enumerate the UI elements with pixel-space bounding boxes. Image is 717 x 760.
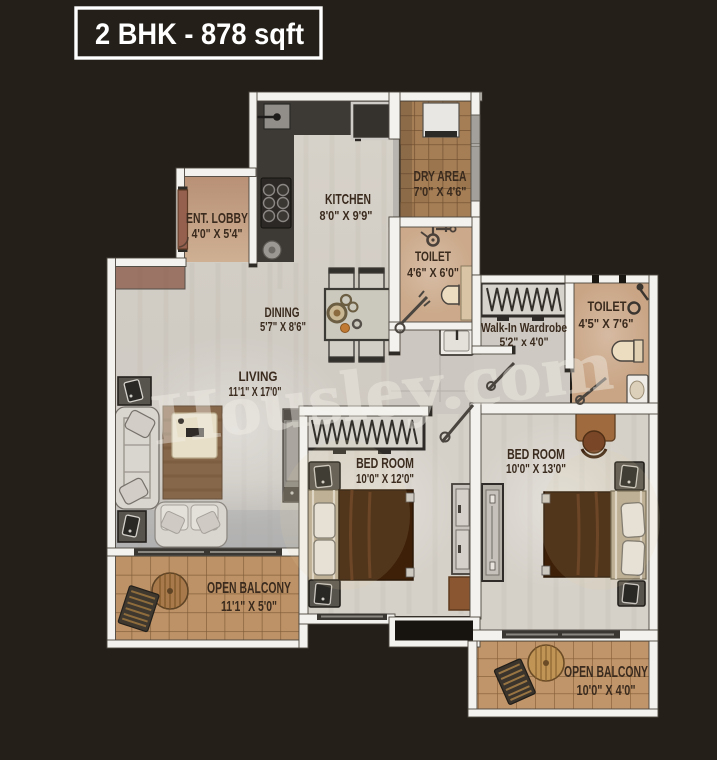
svg-text:11'1" X 5'0": 11'1" X 5'0" <box>221 598 277 614</box>
svg-text:DRY AREA: DRY AREA <box>414 168 467 184</box>
svg-text:KITCHEN: KITCHEN <box>325 191 371 207</box>
svg-text:5'7" X 8'6": 5'7" X 8'6" <box>260 321 306 335</box>
svg-text:TOILET: TOILET <box>415 248 451 264</box>
svg-text:2 BHK - 878 sqft: 2 BHK - 878 sqft <box>95 18 304 51</box>
svg-text:10'0" X 12'0": 10'0" X 12'0" <box>356 473 414 487</box>
svg-text:DINING: DINING <box>265 304 300 320</box>
svg-text:8'0" X 9'9": 8'0" X 9'9" <box>320 208 373 223</box>
svg-text:10'0" X 13'0": 10'0" X 13'0" <box>506 462 566 477</box>
svg-text:4'0" X 5'4": 4'0" X 5'4" <box>192 227 243 241</box>
svg-text:10'0" X 4'0": 10'0" X 4'0" <box>577 681 636 698</box>
svg-text:7'0" X 4'6": 7'0" X 4'6" <box>414 184 467 199</box>
svg-text:4'6" X 6'0": 4'6" X 6'0" <box>407 265 459 280</box>
svg-text:ENT. LOBBY: ENT. LOBBY <box>186 210 248 226</box>
svg-text:BED ROOM: BED ROOM <box>356 455 414 471</box>
svg-text:TOILET: TOILET <box>588 299 627 315</box>
svg-text:BED ROOM: BED ROOM <box>507 446 565 462</box>
svg-text:OPEN BALCONY: OPEN BALCONY <box>207 579 291 597</box>
svg-text:OPEN BALCONY: OPEN BALCONY <box>564 663 648 681</box>
